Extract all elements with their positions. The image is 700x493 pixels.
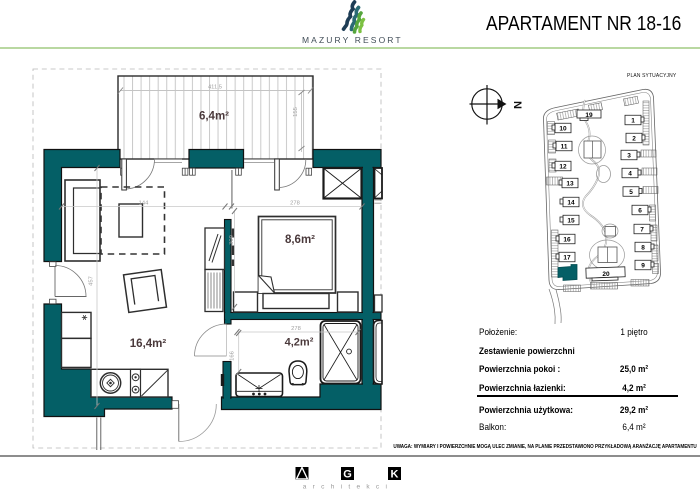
svg-text:166: 166 bbox=[230, 351, 236, 361]
svg-text:4: 4 bbox=[628, 171, 632, 178]
svg-text:9: 9 bbox=[641, 263, 645, 270]
svg-text:155: 155 bbox=[293, 107, 299, 117]
svg-text:19: 19 bbox=[585, 112, 593, 119]
svg-text:13: 13 bbox=[566, 181, 574, 188]
svg-text:6: 6 bbox=[638, 208, 642, 215]
svg-text:7: 7 bbox=[640, 227, 644, 234]
svg-text:4,2m²: 4,2m² bbox=[285, 337, 314, 349]
svg-text:1: 1 bbox=[631, 118, 635, 125]
svg-text:12: 12 bbox=[559, 164, 567, 171]
svg-text:G: G bbox=[343, 469, 352, 481]
svg-text:16: 16 bbox=[563, 237, 571, 244]
svg-text:20: 20 bbox=[602, 271, 610, 278]
svg-text:278: 278 bbox=[290, 201, 300, 207]
svg-text:278: 278 bbox=[291, 326, 301, 332]
svg-text:K: K bbox=[391, 469, 399, 481]
svg-text:5: 5 bbox=[629, 189, 633, 196]
svg-text:10: 10 bbox=[559, 126, 567, 133]
svg-text:14: 14 bbox=[567, 200, 575, 207]
svg-text:8: 8 bbox=[641, 245, 645, 252]
svg-text:2: 2 bbox=[632, 136, 636, 143]
svg-text:16,4m²: 16,4m² bbox=[130, 338, 167, 350]
svg-text:N: N bbox=[511, 101, 523, 109]
svg-text:411,5: 411,5 bbox=[208, 85, 222, 91]
svg-text:15: 15 bbox=[567, 218, 575, 225]
svg-text:8,6m²: 8,6m² bbox=[285, 234, 315, 246]
svg-text:3: 3 bbox=[627, 153, 631, 160]
svg-text:309: 309 bbox=[229, 235, 235, 245]
svg-text:architekci: architekci bbox=[303, 484, 393, 491]
svg-text:17: 17 bbox=[563, 255, 571, 262]
svg-text:457: 457 bbox=[89, 276, 95, 286]
svg-text:11: 11 bbox=[561, 144, 568, 151]
svg-text:144: 144 bbox=[139, 201, 149, 207]
svg-text:6,4m²: 6,4m² bbox=[199, 111, 229, 123]
